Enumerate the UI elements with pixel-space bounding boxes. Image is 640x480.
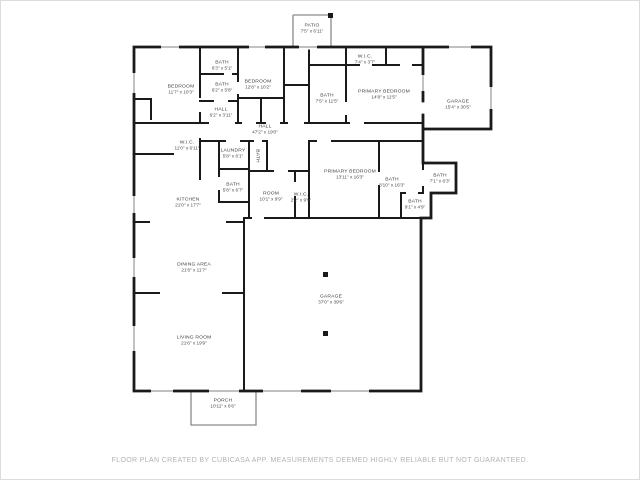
room-label-wic-1: W.I.C.7'4" x 3'7" bbox=[355, 53, 375, 65]
room-label-bedroom-1: BEDROOM11'7" x 10'3" bbox=[168, 83, 195, 95]
room-label-laundry: LAUNDRY5'8" x 6'1" bbox=[221, 147, 246, 159]
garage-post bbox=[323, 331, 328, 336]
room-label-bath-4: BATH bbox=[255, 149, 261, 163]
room-label-wic-2: W.I.C.11'0" x 6'11" bbox=[175, 139, 200, 151]
floorplan-walls bbox=[1, 1, 640, 480]
room-label-bath-7: BATH7'1" x 6'3" bbox=[430, 172, 450, 184]
room-label-primary-bedroom-1: PRIMARY BEDROOM14'8" x 11'5" bbox=[358, 88, 410, 100]
garage-post bbox=[323, 272, 328, 277]
room-label-bedroom-2: BEDROOM12'8" x 10'2" bbox=[245, 78, 272, 90]
room-label-bath-8: BATH9'1" x 4'9" bbox=[405, 198, 425, 210]
room-label-porch: PORCH10'11" x 6'6" bbox=[210, 397, 235, 409]
room-label-bath-5: BATH5'8" x 6'7" bbox=[223, 181, 243, 193]
room-label-bath-6: BATH8'10" x 16'3" bbox=[379, 176, 405, 188]
room-label-wic-3: W.I.C.2'2" x 9'9" bbox=[291, 191, 311, 203]
floorplan-image: PATIO7'5" x 6'11" BEDROOM11'7" x 10'3" B… bbox=[0, 0, 640, 480]
room-label-bath-3: BATH7'5" x 11'5" bbox=[316, 92, 339, 104]
room-label-garage-2: GARAGE37'0" x 39'6" bbox=[318, 293, 344, 305]
room-label-living-room: LIVING ROOM21'6" x 19'9" bbox=[177, 334, 212, 346]
room-label-hall-1: HALL6'2" x 3'11" bbox=[210, 106, 233, 118]
room-label-patio: PATIO7'5" x 6'11" bbox=[301, 22, 324, 34]
room-label-kitchen: KITCHEN21'0" x 17'7" bbox=[175, 196, 201, 208]
room-label-garage-1: GARAGE15'4" x 30'5" bbox=[445, 98, 471, 110]
room-label-bath-1: BATH6'3" x 5'1" bbox=[212, 59, 232, 71]
room-label-bath-2: BATH6'2" x 5'8" bbox=[212, 81, 232, 93]
room-label-room: ROOM10'1" x 9'9" bbox=[259, 190, 282, 202]
room-label-primary-bedroom-2: PRIMARY BEDROOM13'11" x 16'3" bbox=[324, 168, 376, 180]
room-label-hall-2: HALL47'2" x 19'0" bbox=[252, 123, 278, 135]
footer-disclaimer: FLOOR PLAN CREATED BY CUBICASA APP. MEAS… bbox=[1, 457, 639, 464]
room-label-dining-area: DINING AREA21'6" x 11'7" bbox=[177, 261, 211, 273]
patio-corner-marker bbox=[328, 13, 333, 18]
